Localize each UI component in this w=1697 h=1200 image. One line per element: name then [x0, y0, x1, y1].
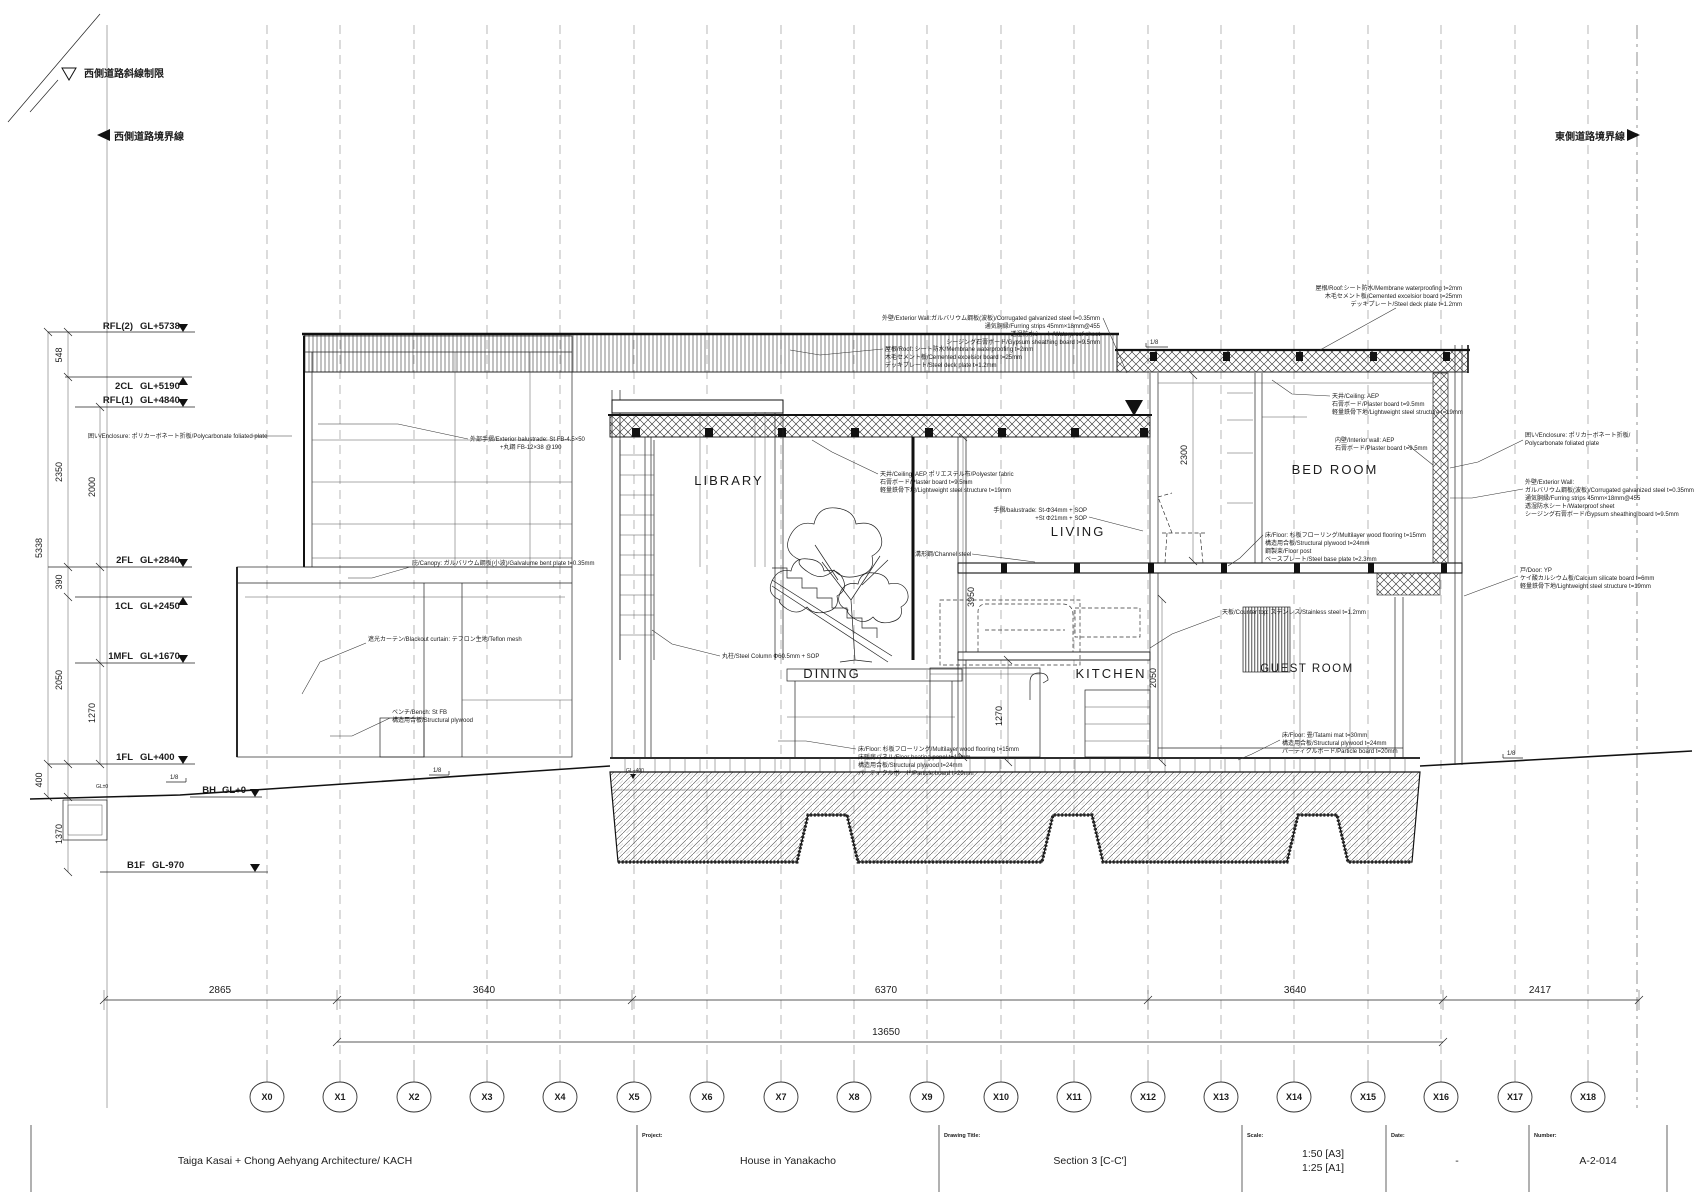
dim-13650: 13650 [872, 1027, 900, 1038]
grid-label: X13 [1213, 1092, 1229, 1102]
steel-column-dining [645, 437, 651, 757]
level-name: 1CL [115, 601, 133, 612]
site-lines: 西側道路斜線制限 西側道路境界線 東側道路境界線 [8, 14, 1640, 1108]
building: 1/8 [237, 334, 1470, 862]
date-value: - [1455, 1155, 1459, 1167]
callout-guest-floor: 床/Floor: 畳/Tatami mat t=30mm 構造用合板/Struc… [1238, 731, 1398, 760]
level-name: B1F [127, 860, 145, 871]
grid-label: X11 [1066, 1092, 1082, 1102]
svg-text:石膏ボード/Plaster board t=9.5mm: 石膏ボード/Plaster board t=9.5mm [880, 478, 973, 486]
number-label: Number: [1534, 1133, 1557, 1139]
east-boundary-label: 東側道路境界線 [1555, 130, 1625, 143]
level-name: RFL(2) [103, 321, 133, 332]
level-name: BH [202, 785, 216, 796]
drawing-number: A-2-014 [1579, 1155, 1617, 1167]
dim-1370: 1370 [54, 824, 64, 844]
left-dimensions: 548 2350 2000 5338 390 2050 1270 400 137… [34, 328, 104, 876]
slope-marker-west-1: 1/8 [166, 775, 186, 782]
ground-floor-deck [610, 758, 1420, 772]
svg-text:外壁/Exterior Wall:: 外壁/Exterior Wall: [1525, 478, 1574, 486]
svg-text:天板/Counter top: ステンレス/Stainles: 天板/Counter top: ステンレス/Stainless steel t=… [1222, 608, 1366, 616]
svg-text:木毛セメント板/Cemented excelsior boa: 木毛セメント板/Cemented excelsior board t=25mm [1325, 292, 1462, 300]
ground-line-west [30, 766, 610, 799]
section-drawing: 西側道路斜線制限 西側道路境界線 東側道路境界線 X0 X1 X2 X3 X4 … [0, 0, 1697, 1200]
svg-text:構造用合板/Structural plywood t=24m: 構造用合板/Structural plywood t=24mm [858, 761, 963, 769]
dim-2000: 2000 [87, 477, 97, 497]
dim-2050-guest: 2050 [1148, 668, 1158, 688]
grid-label: X10 [993, 1092, 1009, 1102]
callout-curtain: 遮光カーテン/Blackout curtain: テフロン生地/Teflon m… [302, 635, 522, 694]
svg-text:ガルバリウム鋼板(波板)/Corrugated galvan: ガルバリウム鋼板(波板)/Corrugated galvanized steel… [1525, 486, 1694, 494]
svg-text:シージング石膏ボード/Gypsum sheathing bo: シージング石膏ボード/Gypsum sheathing board t=9.5m… [946, 338, 1100, 346]
room-label-living: LIVING [1051, 524, 1106, 539]
svg-text:透湿防水シート/Waterproof sheet: 透湿防水シート/Waterproof sheet [1011, 330, 1101, 338]
dim-2050: 2050 [54, 670, 64, 690]
level-elev: GL+5190 [140, 381, 180, 392]
setback-marker-triangle [62, 68, 76, 80]
library-floor-beam [612, 400, 783, 413]
faucet [1030, 673, 1048, 700]
svg-text:木毛セメント板/Cemented excelsior boa: 木毛セメント板/Cemented excelsior board t=25mm [885, 353, 1022, 361]
callout-enclosure-west: 囲い/Enclosure: ポリカーボネート折板/Polycarbonate f… [88, 432, 292, 440]
level-elev: GL+5738 [140, 321, 180, 332]
svg-text:石膏ボード/Plaster board t=9.5mm: 石膏ボード/Plaster board t=9.5mm [1332, 400, 1425, 408]
svg-text:囲い/Enclosure: ポリカーボネート折板/Polyc: 囲い/Enclosure: ポリカーボネート折板/Polycarbonate f… [88, 432, 268, 440]
drawing-title-label: Drawing Title: [944, 1133, 980, 1139]
grid-label: X3 [481, 1092, 492, 1102]
kitchen-cabinet [1085, 690, 1150, 757]
callout-bench: ベンチ/Bench: St FB 構造用合板/Structural plywoo… [330, 709, 473, 736]
library-ladder [620, 455, 654, 635]
drawing-sheet: 西側道路斜線制限 西側道路境界線 東側道路境界線 X0 X1 X2 X3 X4 … [0, 0, 1697, 1200]
dining-table [787, 669, 962, 757]
dim-5338: 5338 [34, 538, 44, 558]
grid-label: X14 [1286, 1092, 1302, 1102]
svg-text:1/8: 1/8 [170, 775, 179, 781]
svg-text:デッキプレート/Steel deck plate t=1.2: デッキプレート/Steel deck plate t=1.2mm [1350, 300, 1462, 308]
grid-bubble-labels: X0 X1 X2 X3 X4 X5 X6 X7 X8 X9 X10 X11 X1… [261, 1092, 1596, 1102]
slope-marker-east: 1/8 [1503, 751, 1523, 758]
level-elev: GL+2450 [140, 601, 180, 612]
svg-text:天井/Ceiling: AEP ポリエステル布/Polyes: 天井/Ceiling: AEP ポリエステル布/Polyester fabric [880, 470, 1014, 478]
bottom-dimensions: 2865 3640 6370 3640 2417 13650 [100, 985, 1643, 1046]
dim-2865: 2865 [209, 985, 232, 996]
callout-bedroom-wall: 内壁/Interior wall: AEP 石膏ボード/Plaster boar… [1335, 436, 1433, 465]
living-mezzanine [958, 604, 1150, 660]
grid-label: X12 [1140, 1092, 1156, 1102]
svg-text:遮光カーテン/Blackout curtain: テフロン生: 遮光カーテン/Blackout curtain: テフロン生地/Teflon m… [368, 635, 522, 643]
svg-text:軽量鉄骨下地/Lightweight steel struc: 軽量鉄骨下地/Lightweight steel structure t=19m… [1520, 582, 1651, 590]
svg-text:手摺/balustrade: St-Φ34mm + SOP: 手摺/balustrade: St-Φ34mm + SOP [993, 506, 1087, 514]
level-name: 1MFL [108, 651, 133, 662]
svg-text:囲い/Enclosure: ポリカーボネート折板/: 囲い/Enclosure: ポリカーボネート折板/ [1525, 431, 1631, 439]
dim-2300-bedroom: 2300 [1179, 445, 1189, 465]
grid-label: X2 [408, 1092, 419, 1102]
svg-text:通気胴縁/Furring strips 45mm×18mm@: 通気胴縁/Furring strips 45mm×18mm@455 [1525, 494, 1641, 502]
callout-canopy: 庇/Canopy: ガルバリウム鋼板(小波)/Galvalume bent pl… [348, 559, 595, 578]
chair-dashed [1158, 493, 1205, 563]
svg-text:床/Floor: 杉板フローリング/Multilayer w: 床/Floor: 杉板フローリング/Multilayer wood floori… [1265, 531, 1426, 539]
level-name: 2FL [116, 555, 133, 566]
svg-text:溝形鋼/Channel steel: 溝形鋼/Channel steel [915, 550, 971, 558]
level-elev: GL+4840 [140, 395, 180, 406]
room-label-guestroom: GUEST ROOM [1260, 663, 1353, 675]
svg-text:通気胴縁/Furring strips 45mm×18mm@: 通気胴縁/Furring strips 45mm×18mm@455 [985, 322, 1101, 330]
drawing-title: Section 3 [C-C'] [1053, 1155, 1126, 1167]
svg-text:軽量鉄骨下地/Lightweight steel struc: 軽量鉄骨下地/Lightweight steel structure t=19m… [880, 486, 1011, 494]
title-block: Taiga Kasai + Chong Aehyang Architecture… [31, 1125, 1667, 1192]
callout-ext-wall-east: 外壁/Exterior Wall: ガルバリウム鋼板(波板)/Corrugate… [1450, 478, 1694, 518]
dim-400: 400 [34, 772, 44, 787]
dim-3640-a: 3640 [473, 985, 496, 996]
callout-channel-steel: 溝形鋼/Channel steel [915, 550, 1035, 562]
svg-text:パーティクルボード/Particle board t=20m: パーティクルボード/Particle board t=20mm [858, 769, 974, 777]
svg-text:内壁/Interior wall: AEP: 内壁/Interior wall: AEP [1335, 436, 1394, 444]
grid-label: X1 [334, 1092, 345, 1102]
bedroom-ladder [1227, 393, 1253, 503]
svg-text:デッキプレート/Steel deck plate t=1.2: デッキプレート/Steel deck plate t=1.2mm [885, 361, 997, 369]
svg-text:天井/Ceiling: AEP: 天井/Ceiling: AEP [1332, 392, 1379, 400]
svg-text:構造用合板/Structural plywood t=24m: 構造用合板/Structural plywood t=24mm [1282, 739, 1387, 747]
svg-text:構造用合板/Structural plywood: 構造用合板/Structural plywood [392, 716, 473, 724]
grid-label: X15 [1360, 1092, 1376, 1102]
scale-a3: 1:50 [A3] [1302, 1148, 1344, 1160]
west-boundary-arrow [97, 129, 110, 141]
svg-text:外部手摺/Exterior balustrade: St F: 外部手摺/Exterior balustrade: St FB-4.5×50 [470, 435, 586, 443]
left-lower-block [237, 567, 572, 757]
callout-bedroom-floor: 床/Floor: 杉板フローリング/Multilayer wood floori… [1228, 531, 1426, 566]
grid-label: X4 [554, 1092, 565, 1102]
svg-text:パーティクルボード/Particle board t=20m: パーティクルボード/Particle board t=20mm [1282, 747, 1398, 755]
room-label-dining: DINING [803, 666, 861, 681]
svg-text:構造用合板/Structural plywood t=24m: 構造用合板/Structural plywood t=24mm [1265, 539, 1370, 547]
svg-text:床暖房パネル/Floor heating panel t=1: 床暖房パネル/Floor heating panel t=12mm [858, 753, 971, 761]
level-name: 1FL [116, 752, 133, 763]
slope-marker-roof: 1/8 [1146, 340, 1168, 347]
dim-1270: 1270 [87, 703, 97, 723]
svg-text:ケイ酸カルシウム板/Calcium silicate boa: ケイ酸カルシウム板/Calcium silicate board t=6mm [1520, 574, 1654, 582]
grid-label: X9 [921, 1092, 932, 1102]
west-setback-label: 西側道路斜線制限 [84, 67, 165, 80]
setback-slant-line-2 [30, 80, 58, 112]
svg-text:庇/Canopy: ガルバリウム鋼板(小波)/Galvalu: 庇/Canopy: ガルバリウム鋼板(小波)/Galvalume bent pl… [412, 559, 595, 567]
room-label-kitchen: KITCHEN [1075, 666, 1146, 681]
dim-2417: 2417 [1529, 985, 1552, 996]
scale-label: Scale: [1247, 1133, 1263, 1139]
project-label: Project: [642, 1133, 663, 1139]
level-labels: RFL(2) GL+5738 2CL GL+5190 RFL(1) GL+484… [96, 321, 246, 871]
svg-text:屋根/Roof:シート防水/Membrane waterpr: 屋根/Roof:シート防水/Membrane waterproofing t=2… [1315, 284, 1462, 292]
architect-name: Taiga Kasai + Chong Aehyang Architecture… [178, 1155, 412, 1167]
svg-text:1/8: 1/8 [433, 768, 442, 774]
pit [63, 800, 107, 840]
second-floor-band [958, 563, 1462, 573]
stairs [772, 568, 892, 662]
svg-text:1/8: 1/8 [1507, 751, 1516, 757]
svg-text:軽量鉄骨下地/Lightweight steel struc: 軽量鉄骨下地/Lightweight steel structure t=19m… [1332, 408, 1463, 416]
svg-text:ベンチ/Bench: St FB: ベンチ/Bench: St FB [392, 709, 447, 716]
svg-text:屋根/Roof: シート防水/Membrane waterp: 屋根/Roof: シート防水/Membrane waterproofing t=… [885, 345, 1033, 353]
dim-548: 548 [54, 347, 64, 362]
dim-3640-b: 3640 [1284, 985, 1307, 996]
callout-ext-balustrade: 外部手摺/Exterior balustrade: St FB-4.5×50 +… [318, 424, 586, 451]
svg-text:外壁/Exterior Wall:ガルバリウム鋼板(波板)/: 外壁/Exterior Wall:ガルバリウム鋼板(波板)/Corrugated… [882, 314, 1100, 322]
slope-marker-west-2: 1/8 [429, 768, 449, 775]
callout-roof-right: 屋根/Roof:シート防水/Membrane waterproofing t=2… [1315, 284, 1462, 350]
dim-2350: 2350 [54, 462, 64, 482]
svg-text:シージング石膏ボード/Gypsum sheathing bo: シージング石膏ボード/Gypsum sheathing board t=9.5m… [1525, 510, 1679, 518]
dim-6370: 6370 [875, 985, 898, 996]
project-name: House in Yanakacho [740, 1155, 836, 1167]
sofa-dashed [978, 604, 1073, 652]
svg-text:床/Floor: 杉板フローリング/Multilayer w: 床/Floor: 杉板フローリング/Multilayer wood floori… [858, 745, 1019, 753]
room-label-bedroom: BED ROOM [1292, 462, 1379, 477]
svg-text:+丸鋼 FB-12×38 @190: +丸鋼 FB-12×38 @190 [500, 443, 562, 451]
level-name: RFL(1) [103, 395, 133, 406]
dim-390: 390 [54, 574, 64, 589]
foundation [610, 772, 1420, 862]
grid-label: X7 [775, 1092, 786, 1102]
grid-label: X5 [628, 1092, 639, 1102]
svg-text:戸/Door: YP: 戸/Door: YP [1520, 567, 1552, 574]
grid-label: X8 [848, 1092, 859, 1102]
gl-zero-small-label: GL±0 [96, 784, 108, 790]
gutter [1125, 400, 1143, 416]
svg-text:1/8: 1/8 [1150, 340, 1159, 346]
level-elev: GL+1670 [140, 651, 180, 662]
svg-text:丸柱/Steel Column Φ60.5mm + SOP: 丸柱/Steel Column Φ60.5mm + SOP [722, 652, 819, 660]
grid-label: X6 [701, 1092, 712, 1102]
setback-slant-line [8, 14, 100, 122]
dim-3950: 3950 [966, 587, 976, 607]
library-tower [612, 390, 783, 757]
svg-text:透湿防水シート/Waterproof sheet: 透湿防水シート/Waterproof sheet [1525, 502, 1615, 510]
level-elev: GL-970 [152, 860, 184, 871]
grid-label: X18 [1580, 1092, 1596, 1102]
east-boundary-arrow [1627, 129, 1640, 141]
svg-text:ベースプレート/Steel base plate t=2.3: ベースプレート/Steel base plate t=2.3mm [1265, 556, 1377, 563]
pit-inner [68, 805, 102, 835]
level-elev: GL+2840 [140, 555, 180, 566]
grid-label: X16 [1433, 1092, 1449, 1102]
callout-door-east: 戸/Door: YP ケイ酸カルシウム板/Calcium silicate bo… [1464, 567, 1654, 596]
west-boundary-label: 西側道路境界線 [114, 130, 184, 143]
level-elev: GL+400 [140, 752, 175, 763]
date-label: Date: [1391, 1133, 1405, 1139]
level-name: 2CL [115, 381, 133, 392]
grid-label: X17 [1507, 1092, 1523, 1102]
east-roof-band [1117, 350, 1468, 372]
grid-label: X0 [261, 1092, 272, 1102]
tree [770, 508, 908, 662]
scale-a1: 1:25 [A1] [1302, 1162, 1344, 1174]
svg-text:+St Φ21mm + SOP: +St Φ21mm + SOP [1035, 516, 1087, 522]
svg-text:鋼製束/Floor post: 鋼製束/Floor post [1265, 547, 1312, 555]
callout-enclosure-east: 囲い/Enclosure: ポリカーボネート折板/ Polycarbonate … [1450, 431, 1631, 468]
mid-floor-band [610, 415, 1150, 437]
living-floor [958, 652, 1150, 660]
svg-text:床/Floor: 畳/Tatami mat t=30mm: 床/Floor: 畳/Tatami mat t=30mm [1282, 731, 1367, 739]
callout-column: 丸柱/Steel Column Φ60.5mm + SOP [652, 630, 819, 660]
dim-1270-kitchen: 1270 [994, 706, 1004, 726]
svg-text:Polycarbonate foliated plate: Polycarbonate foliated plate [1525, 441, 1600, 447]
room-label-library: LIBRARY [694, 473, 763, 488]
svg-text:石膏ボード/Plaster board t=9.5mm: 石膏ボード/Plaster board t=9.5mm [1335, 444, 1428, 452]
east-wall [1433, 345, 1468, 765]
ground-line-east [1420, 751, 1692, 766]
